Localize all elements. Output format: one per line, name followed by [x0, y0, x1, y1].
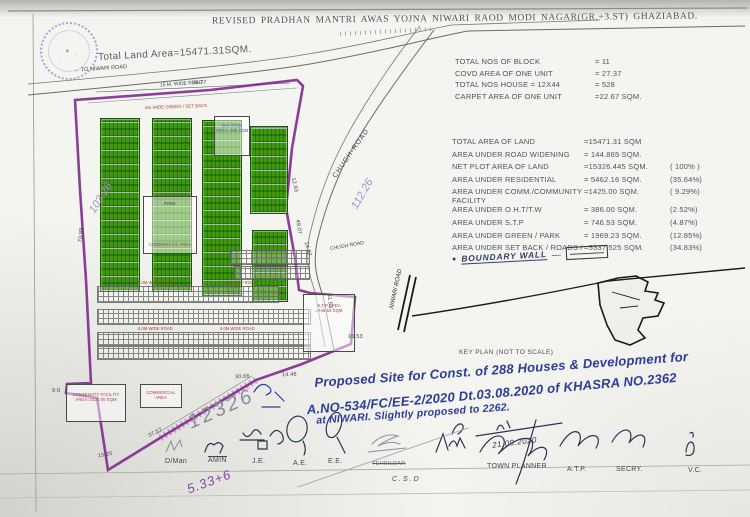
- round-stamp: [34, 16, 104, 86]
- table-row: AREA UNDER COMM./COMMUNITY FACILITY=1425…: [452, 187, 748, 205]
- dimension-label: 30.66: [235, 374, 250, 381]
- total-land-area-label: Total Land Area=15471.31SQM.: [98, 44, 252, 63]
- signatory-label: E.E.: [328, 458, 342, 465]
- table-row: COVD AREA OF ONE UNIT= 27.37: [455, 69, 745, 78]
- area-value: = 386.00 SQM.: [584, 205, 670, 214]
- signatory-label: A.E.: [293, 460, 307, 467]
- road-6m-label: 6.0M WIDE ROAD: [220, 326, 255, 331]
- area-pct: (12.85%): [670, 231, 748, 240]
- dimension-label: 49.07: [294, 219, 302, 235]
- area-pct: (34.83%): [670, 243, 748, 252]
- area-value: = 144.865 SQM.: [584, 150, 670, 159]
- housing-row: [97, 286, 279, 303]
- signatory-label: C.S.D: [392, 476, 421, 483]
- dimension-label: 31.53: [326, 293, 333, 308]
- dimension-label: 37.57: [147, 427, 163, 439]
- area-label: AREA UNDER COMM./COMMUNITY FACILITY: [452, 187, 584, 205]
- area-label: TOTAL AREA OF LAND: [452, 137, 584, 146]
- stp-area-label: =746.53 SQM: [304, 308, 354, 313]
- stat-label: TOTAL NOS HOUSE = 12X44: [455, 80, 595, 89]
- boundary-wall-label: BOUNDARY WALL: [461, 249, 547, 264]
- road-6m-label: 6.0M WIDE ROAD: [138, 280, 173, 285]
- signatory-label: SECRY.: [616, 466, 643, 473]
- handwritten-number: 112.26: [349, 177, 376, 211]
- signatory-label: AMIN: [208, 456, 227, 464]
- page-title: REVISED PRADHAN MANTRI AWAS YOJNA NIWARI…: [212, 11, 698, 26]
- road-6m-label: 6.0M WIDE ROAD: [138, 326, 173, 331]
- area-value: =15471.31 SQM: [584, 137, 670, 146]
- stat-value: =22.67 SQM.: [595, 92, 642, 101]
- stat-value: = 11: [595, 57, 610, 66]
- table-row: TOTAL NOS HOUSE = 12X44= 528: [455, 80, 745, 89]
- set-back-label: 8m WIDE GREEN / SET BACK: [145, 103, 208, 110]
- legend-dash: —: [552, 249, 562, 259]
- dimension-label: 70.89: [78, 227, 85, 242]
- oht-plot-box: O.H.T/T.W AREA=386 SQM: [214, 116, 250, 156]
- signatory-label: D/Man: [165, 458, 187, 465]
- area-value: =15326.445 SQM.: [584, 162, 670, 171]
- table-row: AREA UNDER GREEN / PARK= 1969.23 SQM.(12…: [452, 231, 748, 244]
- housing-row: [97, 332, 311, 346]
- table-row: TOTAL NOS OF BLOCK= 11: [455, 57, 745, 66]
- commercial-box: COMMERCIAL AREA: [140, 384, 182, 408]
- area-value: = 746.53 SQM.: [584, 218, 670, 227]
- commercial-label: COMMERCIAL AREA: [141, 390, 181, 400]
- area-label: AREA UNDER S.T.P: [452, 218, 584, 227]
- area-value: = 1969.23 SQM.: [584, 231, 670, 240]
- legend-bullet: ●: [452, 256, 457, 263]
- table-row: AREA UNDER S.T.P= 746.53 SQM.(4.87%): [452, 218, 748, 231]
- community-facility-area-label: AREA=1425.00 SQM: [67, 397, 125, 402]
- table-row: CARPET AREA OF ONE UNIT=22.67 SQM.: [455, 92, 745, 101]
- housing-row: [97, 346, 311, 360]
- stat-value: = 27.37: [595, 69, 622, 78]
- housing-row: [230, 250, 310, 265]
- table-row: AREA UNDER RESIDENTIAL= 5462.16 SQM.(35.…: [452, 175, 748, 188]
- commercial-center-label: COMMERCIAL AREA: [144, 242, 196, 247]
- handwritten-date: 21.09.2020: [492, 435, 538, 449]
- area-pct: ( 9.29%): [670, 187, 748, 196]
- housing-row: [97, 309, 311, 325]
- housing-row: [234, 266, 310, 280]
- green-building-block: [100, 118, 140, 292]
- area-value: =1425.00 SQM.: [584, 187, 670, 196]
- area-pct: (2.52%): [670, 205, 748, 214]
- table-row: NET PLOT AREA OF LAND=15326.445 SQM.( 10…: [452, 162, 748, 175]
- signatory-label: V.C.: [688, 467, 702, 474]
- area-label: AREA UNDER RESIDENTIAL: [452, 175, 584, 184]
- stat-label: TOTAL NOS OF BLOCK: [455, 57, 595, 66]
- dimension-label: 14.46: [282, 372, 297, 379]
- dimension-label: 15.25: [98, 451, 114, 459]
- stat-label: COVD AREA OF ONE UNIT: [455, 69, 595, 78]
- table-row: AREA UNDER ROAD WIDENING= 144.865 SQM.: [452, 150, 748, 163]
- dimension-label: 9.0: [52, 388, 60, 394]
- park-plot-box: PARK COMMERCIAL AREA: [143, 196, 197, 254]
- scanned-site-plan-sheet: REVISED PRADHAN MANTRI AWAS YOJNA NIWARI…: [0, 0, 750, 517]
- area-label: AREA UNDER ROAD WIDENING: [452, 150, 584, 159]
- stat-value: = 528: [595, 80, 615, 89]
- area-value: = 5462.16 SQM.: [584, 175, 670, 184]
- area-pct: ( 100% ): [670, 162, 748, 171]
- area-pct: (35.64%): [670, 175, 748, 184]
- area-label: NET PLOT AREA OF LAND: [452, 162, 584, 171]
- signatory-label: TEHSILDAR: [372, 461, 406, 467]
- dimension-label: 12.93: [290, 177, 299, 193]
- park-label: PARK: [144, 201, 196, 206]
- dimension-label: 10.53: [348, 334, 363, 340]
- dimension-label: 35.77: [192, 80, 207, 87]
- signatory-label: A.T.P.: [567, 466, 587, 473]
- green-building-block: [250, 126, 288, 214]
- handwritten-pencil-number: 12326: [184, 385, 258, 435]
- area-statement-table: TOTAL AREA OF LAND=15471.31 SQM AREA UND…: [452, 137, 748, 256]
- niwari-road-label: NIWARI ROAD: [389, 269, 403, 310]
- handwritten-number: 5.33+6: [185, 467, 233, 497]
- area-label: AREA UNDER O.H.T/T.W: [452, 205, 584, 214]
- unit-stats-table: TOTAL NOS OF BLOCK= 11 COVD AREA OF ONE …: [455, 57, 745, 103]
- stat-label: CARPET AREA OF ONE UNIT: [455, 92, 595, 101]
- table-row: AREA UNDER O.H.T/T.W= 386.00 SQM.(2.52%): [452, 205, 748, 218]
- road-6m-label: 6.0M WIDE ROAD: [222, 280, 257, 285]
- signatory-label: J.E.: [252, 458, 265, 465]
- key-plan-caption: KEY PLAN (NOT TO SCALE): [459, 349, 553, 356]
- oht-area-label: AREA=386 SQM: [215, 128, 249, 133]
- community-facility-box: COMMUNITY FACILITY AREA=1425.00 SQM: [66, 384, 126, 422]
- chugh-road-lower-label: CHUGH ROAD: [330, 240, 365, 252]
- boundary-wall-symbol: [566, 245, 609, 260]
- chugh-road-label: CHUGH-ROAD: [332, 128, 371, 180]
- area-pct: (4.87%): [670, 218, 748, 227]
- signatory-label: TOWN PLANNER: [487, 463, 547, 470]
- table-row: TOTAL AREA OF LAND=15471.31 SQM: [452, 137, 748, 150]
- area-label: AREA UNDER GREEN / PARK: [452, 231, 584, 240]
